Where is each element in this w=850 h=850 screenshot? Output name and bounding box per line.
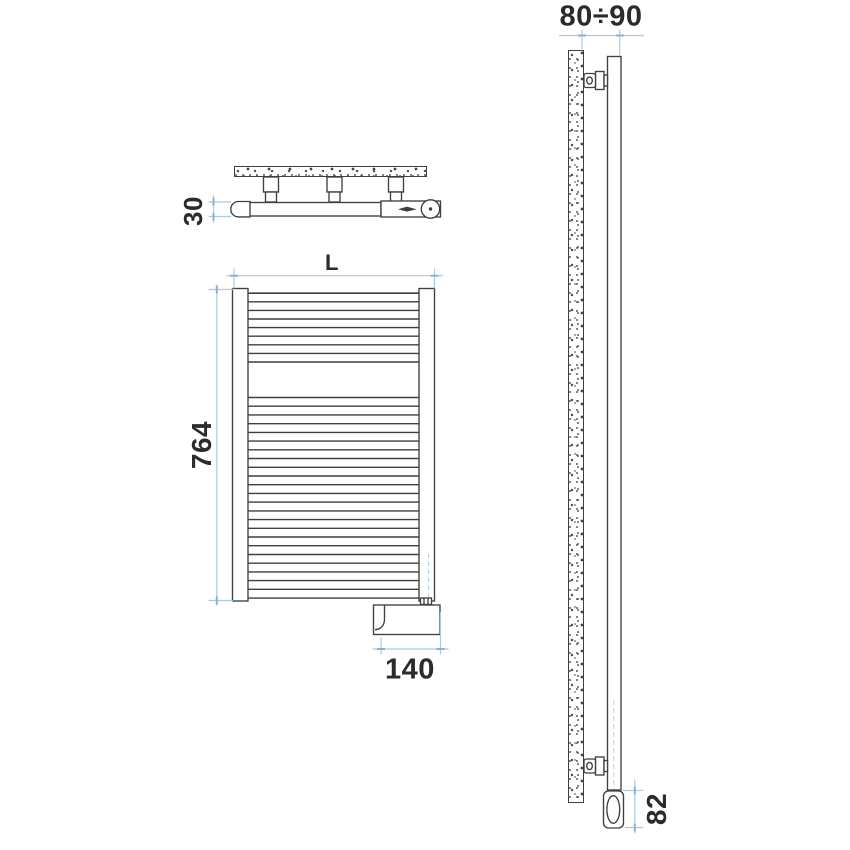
technical-drawing-canvas: 30 L 764 140 80÷90 82	[0, 0, 850, 850]
towel-rungs	[248, 293, 419, 598]
bracket-side-bottom	[584, 757, 608, 775]
dimension-80-90	[559, 30, 644, 56]
dim-element-width-label: 140	[385, 656, 435, 685]
dim-wall-distance-label: 80÷90	[560, 3, 643, 32]
radiator-profile-tube	[608, 57, 622, 791]
element-box-side	[604, 791, 624, 828]
knob-center-dot	[429, 207, 432, 210]
heating-tube-top-view	[250, 203, 382, 217]
bracket-side-top	[584, 72, 608, 90]
dim-width-label: L	[325, 252, 339, 274]
radiator-line-art	[0, 0, 850, 850]
tube-end-cap	[231, 201, 250, 216]
element-box-front	[374, 605, 441, 635]
element-neck	[421, 598, 432, 605]
left-collector	[233, 289, 249, 602]
right-collector	[419, 289, 435, 602]
dim-element-height-label: 82	[643, 793, 671, 825]
mounting-brackets-top-view	[264, 177, 404, 202]
dimension-30	[209, 196, 232, 224]
dim-height-label: 764	[188, 421, 216, 469]
side-view	[559, 30, 644, 834]
front-view	[209, 269, 449, 655]
top-view	[209, 177, 441, 223]
dim-depth-label: 30	[180, 196, 206, 226]
